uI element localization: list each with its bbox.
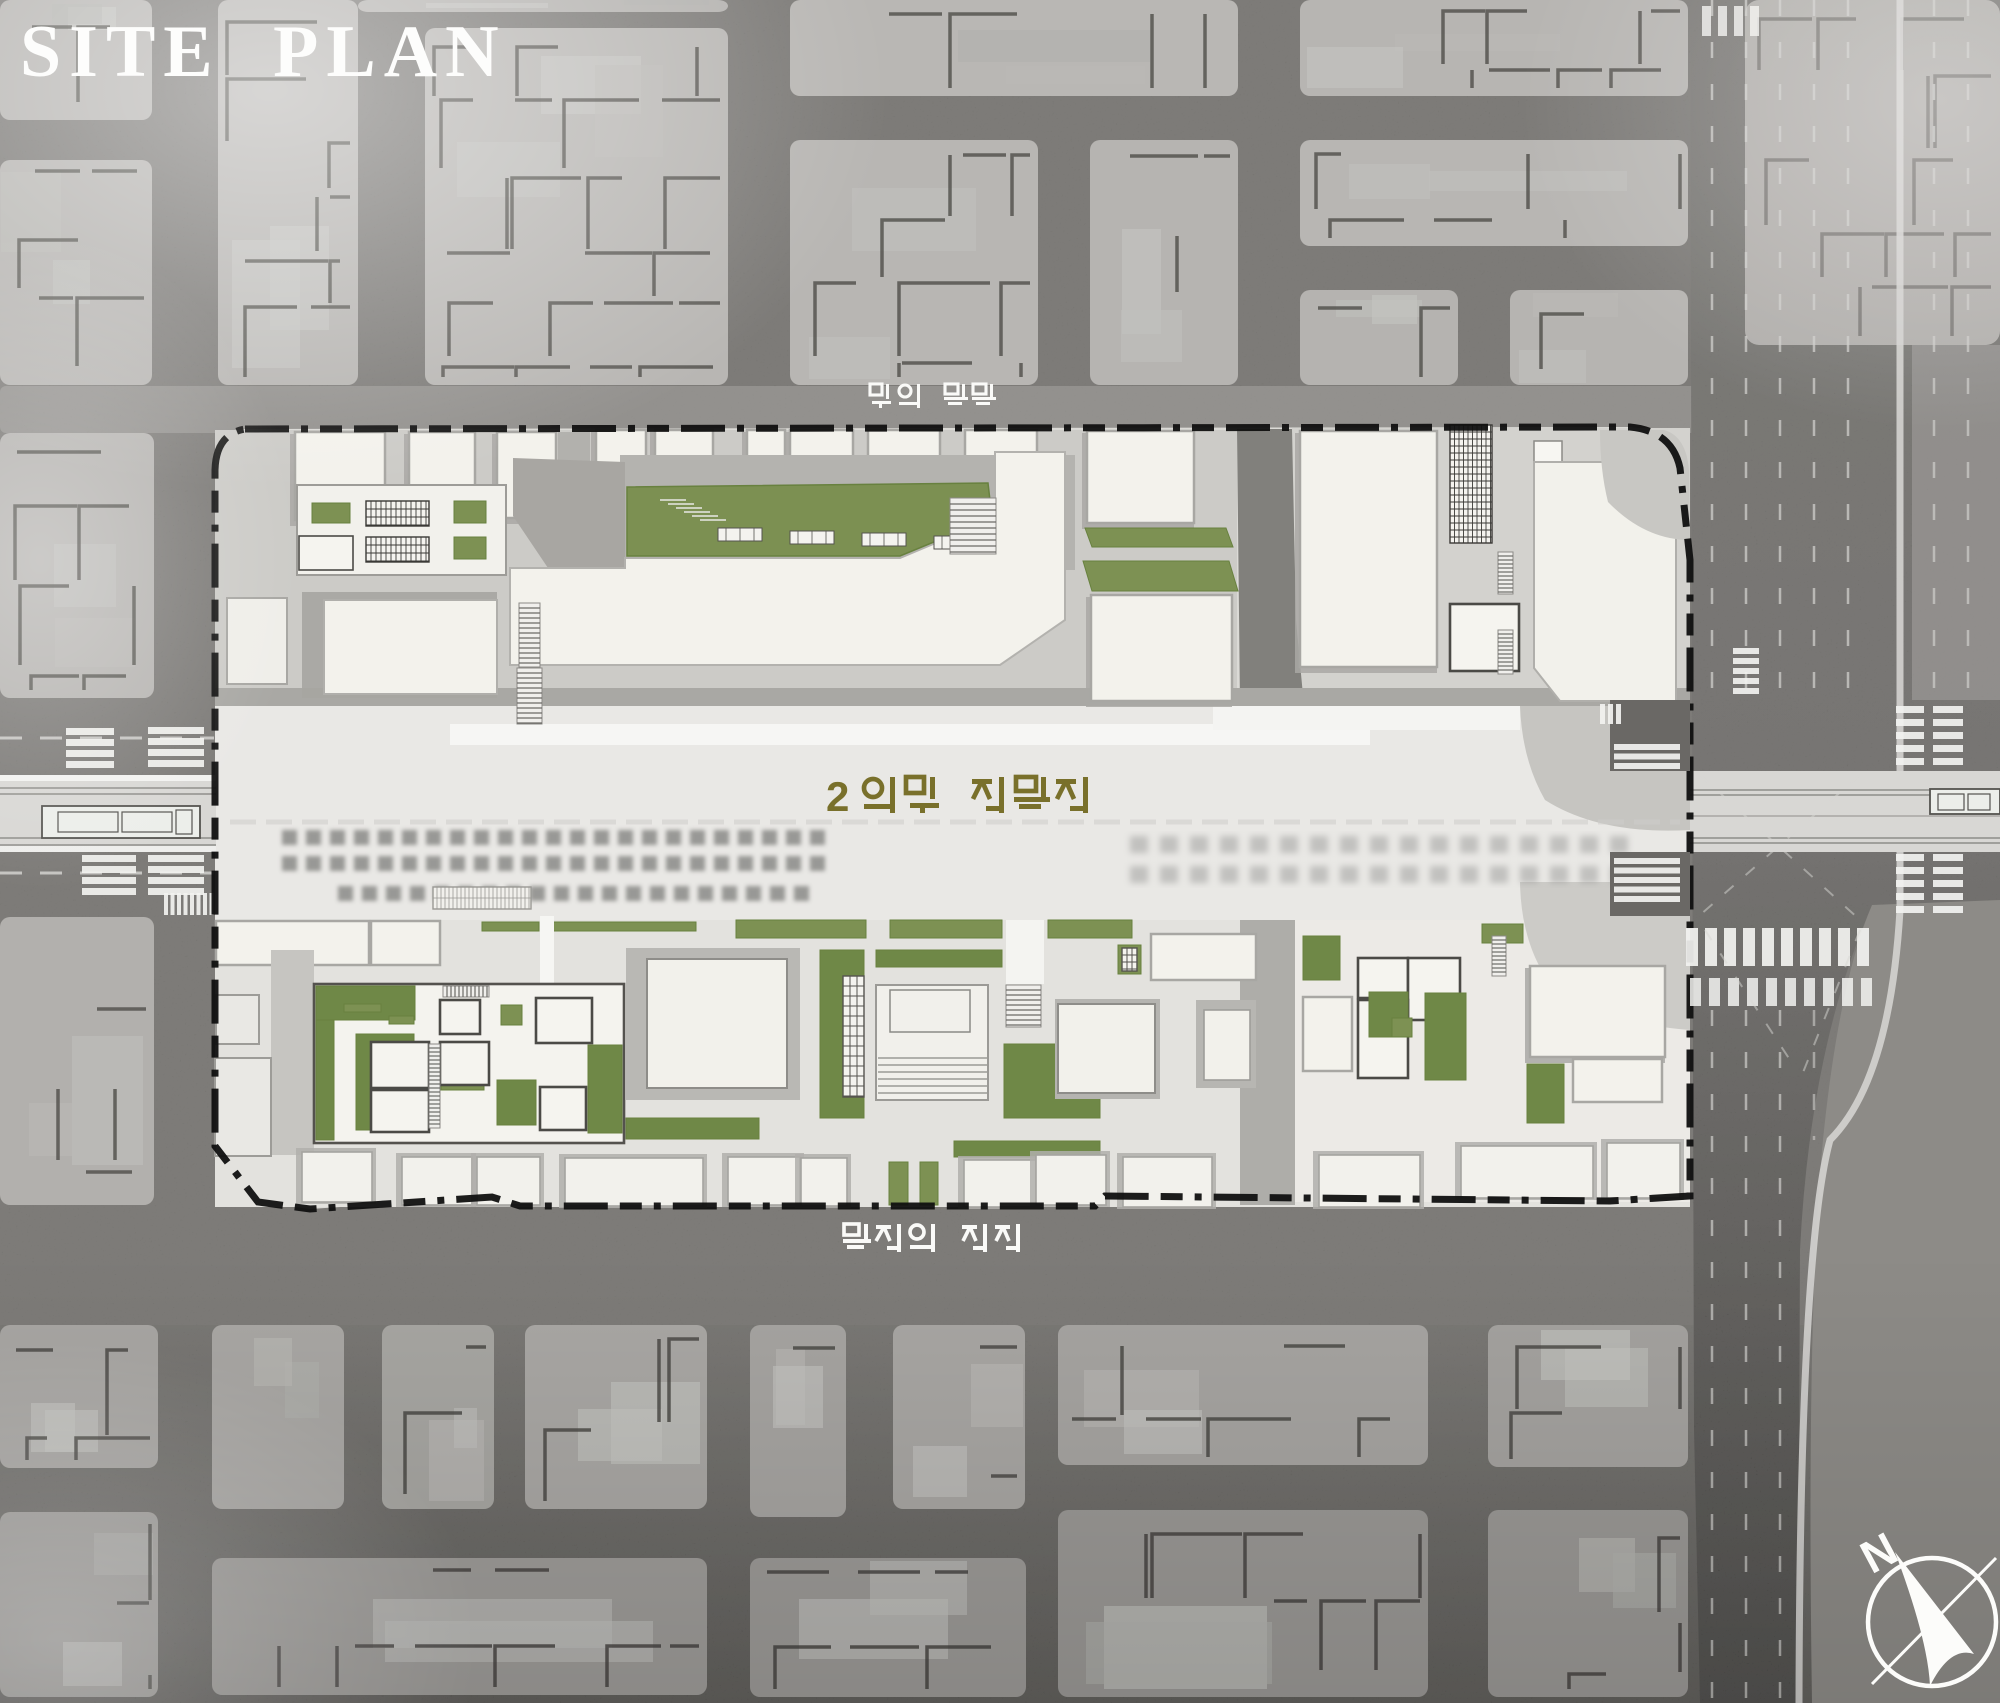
svg-text:2: 2 — [826, 773, 849, 820]
svg-text:SITE PLAN: SITE PLAN — [20, 11, 507, 93]
